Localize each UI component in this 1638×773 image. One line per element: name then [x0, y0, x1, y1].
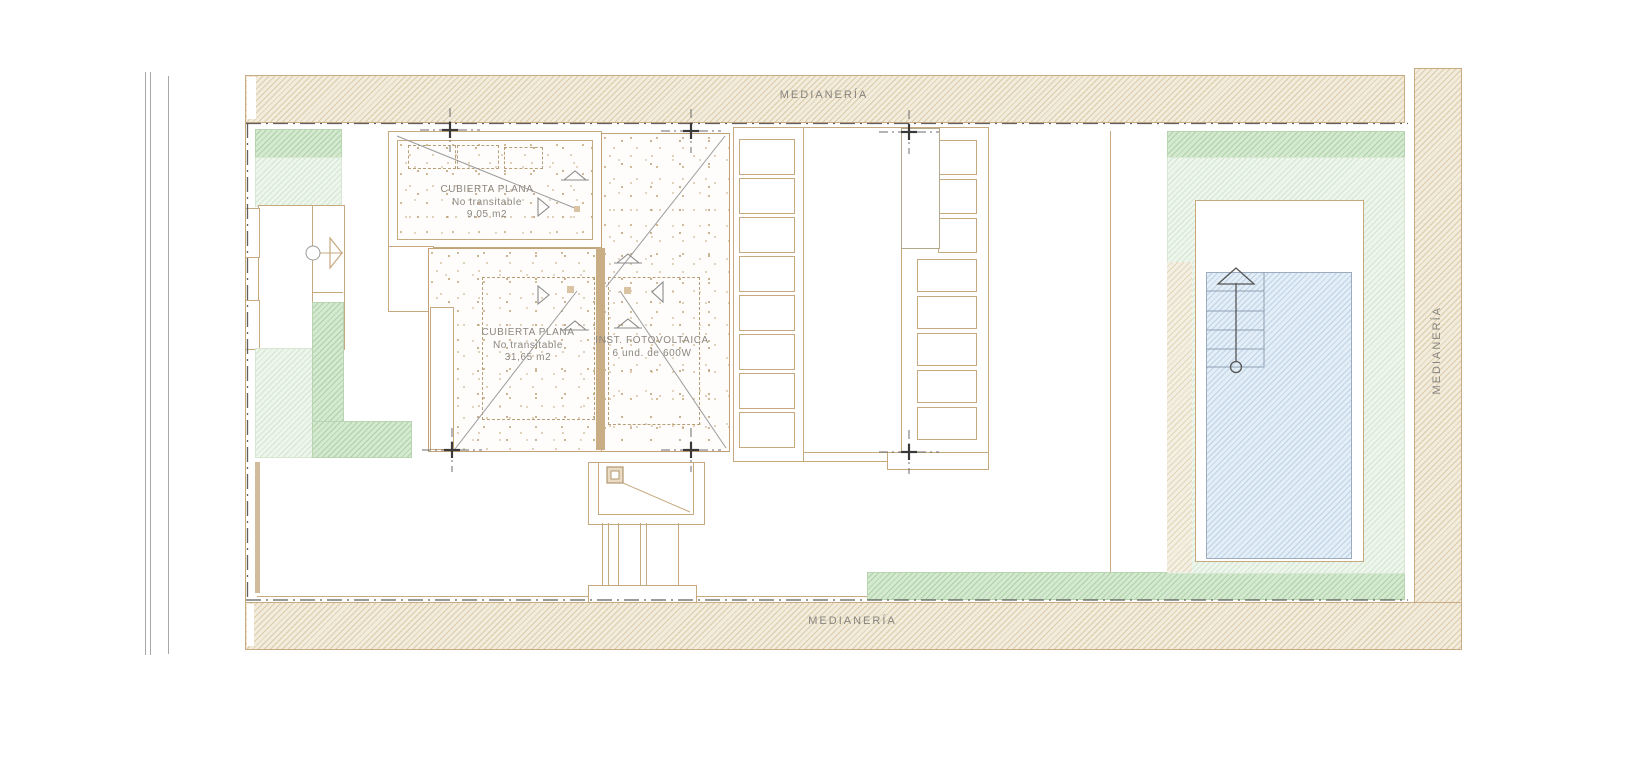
- roof-edge-strip: [430, 307, 454, 450]
- party-wall-label-right: MEDIANERÍA: [1414, 270, 1460, 430]
- skylight: [408, 145, 456, 169]
- pergola-slat: [739, 139, 795, 175]
- pergola-slat: [739, 412, 795, 448]
- roof-main-title: CUBIERTA PLANA: [458, 327, 598, 340]
- roof-main-area: 31,65 m2: [458, 352, 598, 365]
- pergola-slat: [917, 333, 977, 366]
- walkway-line: [618, 523, 619, 585]
- pergola-slat: [739, 217, 795, 253]
- walkway-line: [646, 523, 647, 585]
- skylight: [457, 145, 499, 169]
- street-line: [150, 72, 151, 655]
- porch-wall: [312, 292, 343, 293]
- pergola-slat: [938, 140, 977, 175]
- walkway-line: [678, 523, 679, 585]
- pergola-slat: [739, 178, 795, 214]
- pv-title: INST. FOTOVOLTAICA: [592, 335, 712, 348]
- garden-patch: [312, 421, 412, 458]
- party-wall-label-bottom: MEDIANERÍA: [245, 615, 1460, 627]
- garden-strip-pool-top: [1167, 131, 1405, 159]
- skylight: [504, 147, 543, 169]
- roof-small-subtitle: No transitable: [417, 197, 557, 210]
- pergola-slat: [917, 407, 977, 440]
- wall-segment: [245, 208, 260, 258]
- pergola-slat: [739, 295, 795, 331]
- stair-box-inner: [598, 462, 694, 515]
- roof-small-area: 9,05 m2: [417, 209, 557, 222]
- pergola-slat: [917, 370, 977, 403]
- roof-plan-canvas: MEDIANERÍA MEDIANERÍA MEDIANERÍA CUBIERT…: [0, 0, 1638, 773]
- stair-landing: [588, 585, 697, 603]
- site-left-edge: [245, 75, 246, 648]
- walkway-line: [640, 523, 641, 585]
- street-line: [145, 72, 146, 655]
- pv-label: INST. FOTOVOLTAICA 6 und. de 600W: [592, 335, 712, 360]
- pergola-slat: [739, 373, 795, 409]
- walkway-line: [602, 523, 603, 585]
- garden-patch: [312, 302, 344, 423]
- pool-side-strip: [1167, 262, 1192, 572]
- pergola-slat: [739, 334, 795, 370]
- pv-units: 6 und. de 600W: [592, 348, 712, 361]
- garden-patch: [255, 348, 314, 458]
- right-wing-step: [887, 452, 989, 470]
- pergola-slat: [739, 256, 795, 292]
- fence-line: [257, 596, 867, 597]
- pool: [1206, 272, 1352, 559]
- stair-bulkhead: [901, 128, 940, 249]
- party-wall-label-top: MEDIANERÍA: [245, 89, 1403, 101]
- garden-wall: [255, 462, 260, 593]
- roof-main-subtitle: No transitable: [458, 340, 598, 353]
- paving-edge: [1110, 131, 1111, 572]
- pergola-slat: [917, 296, 977, 329]
- roof-small-title: CUBIERTA PLANA: [417, 184, 557, 197]
- pergola-slat: [938, 179, 977, 214]
- wall-segment: [245, 300, 260, 350]
- garden-patch: [255, 129, 342, 159]
- pergola-slat: [917, 259, 977, 292]
- roof-main-label: CUBIERTA PLANA No transitable 31,65 m2: [458, 327, 598, 365]
- pergola-slat: [938, 218, 977, 253]
- garden-patch: [255, 157, 342, 207]
- roof-small-label: CUBIERTA PLANA No transitable 9,05 m2: [417, 184, 557, 222]
- garden-strip-bottom: [867, 572, 1405, 600]
- street-line: [168, 76, 169, 654]
- walkway-line: [608, 523, 609, 585]
